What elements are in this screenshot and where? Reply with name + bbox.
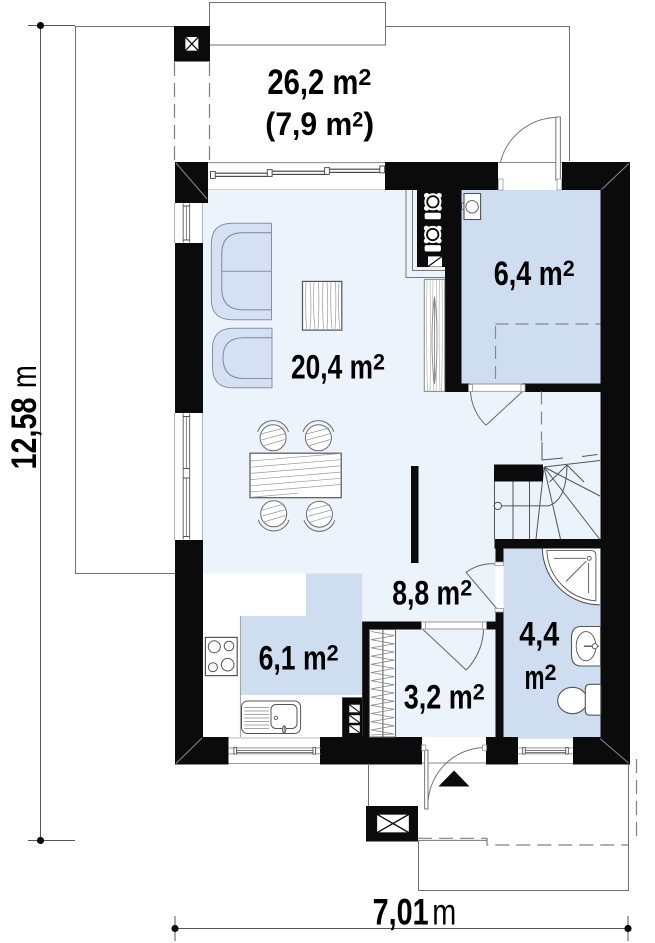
- svg-text:12,58m: 12,58m: [4, 365, 44, 469]
- svg-text:20,4 m2: 20,4 m2: [291, 349, 385, 387]
- svg-text:7,01m: 7,01m: [373, 892, 457, 933]
- svg-text:4,4: 4,4: [519, 616, 559, 654]
- svg-text:3,2 m2: 3,2 m2: [404, 679, 485, 717]
- svg-text:6,1 m2: 6,1 m2: [259, 639, 339, 677]
- svg-text:8,8 m2: 8,8 m2: [392, 574, 472, 612]
- svg-text:26,2 m2: 26,2 m2: [267, 62, 371, 102]
- svg-text:6,4 m2: 6,4 m2: [494, 255, 575, 293]
